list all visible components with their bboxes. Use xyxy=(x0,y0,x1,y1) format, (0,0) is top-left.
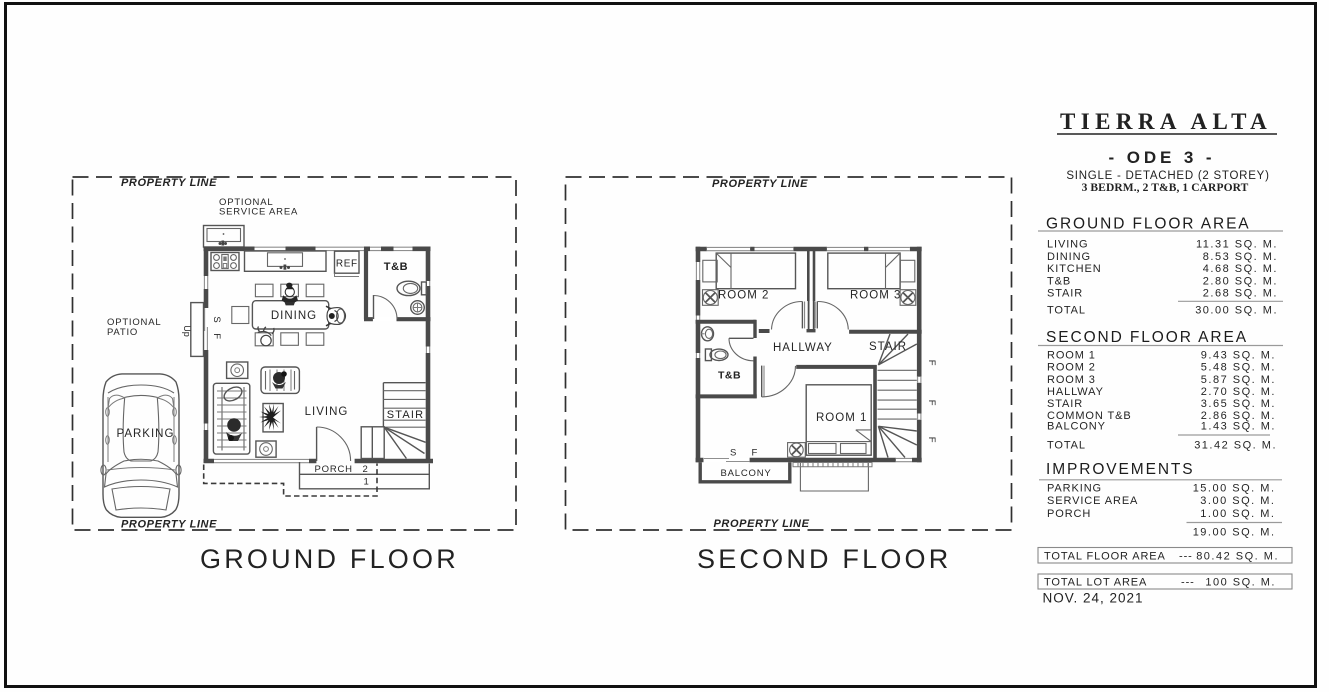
svg-text:HALLWAY: HALLWAY xyxy=(1047,386,1104,398)
svg-text:ROOM 3: ROOM 3 xyxy=(1047,374,1096,386)
svg-text:PROPERTY LINE: PROPERTY LINE xyxy=(121,177,217,189)
svg-text:GROUND FLOOR: GROUND FLOOR xyxy=(200,544,459,574)
svg-text:ROOM 1: ROOM 1 xyxy=(816,412,867,424)
svg-text:LIVING: LIVING xyxy=(305,406,349,418)
svg-text:GROUND FLOOR AREA: GROUND FLOOR AREA xyxy=(1046,216,1251,233)
svg-text:DINING: DINING xyxy=(271,310,317,322)
svg-text:PROPERTY LINE: PROPERTY LINE xyxy=(714,518,810,530)
svg-text:S: S xyxy=(730,448,737,459)
svg-text:SECOND FLOOR AREA: SECOND FLOOR AREA xyxy=(1046,329,1248,346)
svg-text:8.53 SQ. M.: 8.53 SQ. M. xyxy=(1203,251,1278,263)
svg-text:4.68 SQ. M.: 4.68 SQ. M. xyxy=(1203,263,1278,275)
svg-text:SECOND FLOOR: SECOND FLOOR xyxy=(697,544,951,574)
svg-text:1: 1 xyxy=(364,477,370,488)
svg-text:11.31 SQ. M.: 11.31 SQ. M. xyxy=(1196,239,1278,251)
svg-text:PORCH: PORCH xyxy=(1047,508,1091,520)
svg-text:30.00 SQ. M.: 30.00 SQ. M. xyxy=(1195,305,1278,317)
svg-text:1.43 SQ. M.: 1.43 SQ. M. xyxy=(1201,421,1276,433)
svg-text:5.48 SQ. M.: 5.48 SQ. M. xyxy=(1201,362,1276,374)
svg-text:2.80 SQ. M.: 2.80 SQ. M. xyxy=(1203,276,1278,288)
svg-text:PORCH: PORCH xyxy=(315,464,353,475)
svg-text:F: F xyxy=(926,400,937,407)
svg-text:BALCONY: BALCONY xyxy=(721,468,772,479)
svg-text:STAIR: STAIR xyxy=(1047,288,1083,300)
svg-text:TOTAL LOT AREA: TOTAL LOT AREA xyxy=(1044,576,1147,588)
svg-text:STAIR: STAIR xyxy=(387,409,425,421)
svg-text:ROOM 3: ROOM 3 xyxy=(850,290,901,302)
svg-text:ROOM 2: ROOM 2 xyxy=(718,290,769,302)
svg-text:---: --- xyxy=(1179,550,1193,562)
svg-text:5.87 SQ. M.: 5.87 SQ. M. xyxy=(1201,374,1276,386)
svg-text:- ODE 3 -: - ODE 3 - xyxy=(1109,148,1216,167)
svg-text:Up: Up xyxy=(182,325,192,337)
svg-text:F: F xyxy=(926,437,937,444)
svg-text:2.70 SQ. M.: 2.70 SQ. M. xyxy=(1201,386,1276,398)
svg-text:ROOM 2: ROOM 2 xyxy=(1047,362,1096,374)
svg-text:T&B: T&B xyxy=(1047,276,1071,288)
svg-text:STAIR: STAIR xyxy=(869,341,907,353)
svg-text:1.00 SQ. M.: 1.00 SQ. M. xyxy=(1200,508,1275,520)
svg-text:PROPERTY LINE: PROPERTY LINE xyxy=(712,178,808,190)
svg-text:---: --- xyxy=(1181,576,1195,588)
svg-text:3 BEDRM., 2 T&B, 1 CARPORT: 3 BEDRM., 2 T&B, 1 CARPORT xyxy=(1082,182,1249,194)
svg-text:LIVING: LIVING xyxy=(1047,239,1088,251)
svg-text:REF: REF xyxy=(336,259,358,270)
svg-text:TOTAL: TOTAL xyxy=(1047,440,1086,452)
svg-text:BALCONY: BALCONY xyxy=(1047,421,1106,433)
svg-text:F: F xyxy=(211,333,222,340)
svg-text:S: S xyxy=(211,316,222,323)
svg-text:TOTAL FLOOR AREA: TOTAL FLOOR AREA xyxy=(1044,550,1166,562)
svg-text:NOV. 24, 2021: NOV. 24, 2021 xyxy=(1043,591,1144,606)
svg-text:2.68 SQ. M.: 2.68 SQ. M. xyxy=(1203,288,1278,300)
svg-text:SERVICE AREA: SERVICE AREA xyxy=(1047,495,1138,507)
svg-text:T&B: T&B xyxy=(718,370,741,382)
svg-text:PATIO: PATIO xyxy=(107,327,138,338)
svg-text:15.00 SQ. M.: 15.00 SQ. M. xyxy=(1193,482,1276,494)
svg-text:DINING: DINING xyxy=(1047,251,1091,263)
svg-text:31.42 SQ. M.: 31.42 SQ. M. xyxy=(1194,440,1277,452)
svg-text:SINGLE - DETACHED (2 STOREY): SINGLE - DETACHED (2 STOREY) xyxy=(1066,170,1269,182)
svg-text:PARKING: PARKING xyxy=(1047,482,1102,494)
svg-text:STAIR: STAIR xyxy=(1047,398,1083,410)
svg-text:80.42 SQ. M.: 80.42 SQ. M. xyxy=(1196,550,1279,562)
svg-text:3.65 SQ. M.: 3.65 SQ. M. xyxy=(1201,398,1276,410)
svg-text:IMPROVEMENTS: IMPROVEMENTS xyxy=(1046,461,1195,478)
svg-text:3.00 SQ. M.: 3.00 SQ. M. xyxy=(1200,495,1275,507)
svg-text:PARKING: PARKING xyxy=(117,428,175,440)
svg-text:F: F xyxy=(926,360,937,367)
svg-text:SERVICE AREA: SERVICE AREA xyxy=(219,207,298,218)
svg-text:KITCHEN: KITCHEN xyxy=(1047,263,1102,275)
svg-text:9.43 SQ. M.: 9.43 SQ. M. xyxy=(1201,350,1276,362)
svg-text:T&B: T&B xyxy=(384,261,408,273)
svg-text:TIERRA ALTA: TIERRA ALTA xyxy=(1060,109,1272,134)
svg-text:19.00 SQ. M.: 19.00 SQ. M. xyxy=(1193,526,1276,538)
svg-text:ROOM 1: ROOM 1 xyxy=(1047,350,1096,362)
svg-text:HALLWAY: HALLWAY xyxy=(773,342,833,354)
svg-text:F: F xyxy=(752,448,759,459)
svg-text:100 SQ. M.: 100 SQ. M. xyxy=(1205,576,1276,588)
svg-text:TOTAL: TOTAL xyxy=(1047,305,1086,317)
svg-text:2: 2 xyxy=(363,464,369,475)
svg-text:PROPERTY LINE: PROPERTY LINE xyxy=(121,519,217,531)
